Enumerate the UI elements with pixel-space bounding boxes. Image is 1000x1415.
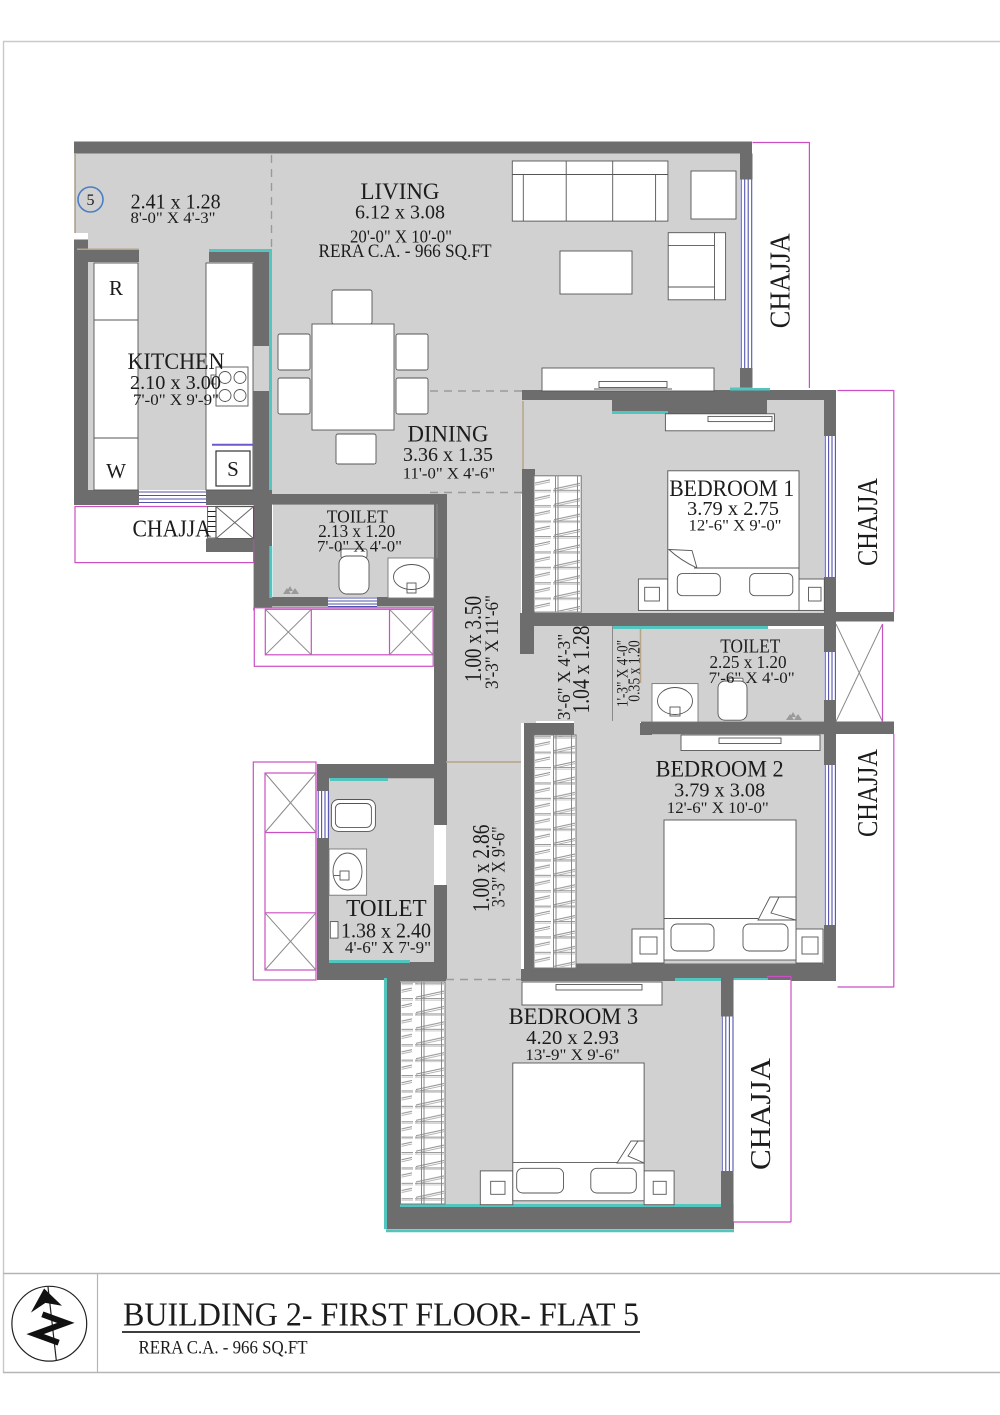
svg-text:2.25 x 1.20: 2.25 x 1.20 — [710, 652, 787, 672]
svg-text:12'-6" X 9'-0": 12'-6" X 9'-0" — [689, 518, 782, 535]
svg-text:13'-9" X 9'-6": 13'-9" X 9'-6" — [525, 1047, 619, 1064]
svg-text:4.20 x 2.93: 4.20 x 2.93 — [526, 1028, 619, 1049]
svg-text:5: 5 — [87, 192, 95, 209]
svg-text:2.10 x 3.00: 2.10 x 3.00 — [130, 372, 221, 394]
svg-text:BEDROOM 2: BEDROOM 2 — [656, 757, 784, 782]
svg-text:R: R — [109, 276, 123, 300]
svg-text:CHAJJA: CHAJJA — [132, 516, 211, 543]
svg-text:S: S — [227, 457, 239, 481]
svg-text:3'-3" X 11'-6": 3'-3" X 11'-6" — [482, 595, 503, 689]
svg-text:CHAJJA: CHAJJA — [853, 748, 884, 837]
svg-text:7'-6" X 4'-0": 7'-6" X 4'-0" — [709, 670, 795, 687]
svg-text:BEDROOM 3: BEDROOM 3 — [509, 1004, 639, 1030]
svg-text:3.79 x 3.08: 3.79 x 3.08 — [674, 780, 765, 802]
svg-text:3'-6" X 4'-3": 3'-6" X 4'-3" — [554, 634, 574, 720]
svg-text:7'-0" X 4'-0": 7'-0" X 4'-0" — [317, 539, 402, 556]
svg-text:1'-3" X 4'-0": 1'-3" X 4'-0" — [614, 640, 631, 707]
svg-text:7'-0" X 9'-9": 7'-0" X 9'-9" — [133, 392, 219, 409]
svg-text:12'-6" X 10'-0": 12'-6" X 10'-0" — [667, 800, 769, 817]
svg-text:CHAJJA: CHAJJA — [853, 477, 884, 566]
svg-text:RERA C.A. - 966 SQ.FT: RERA C.A. - 966 SQ.FT — [319, 242, 492, 262]
svg-text:KITCHEN: KITCHEN — [128, 349, 225, 374]
svg-text:6.12 x 3.08: 6.12 x 3.08 — [355, 202, 445, 224]
svg-text:CHAJJA: CHAJJA — [746, 1057, 777, 1170]
svg-text:CHAJJA: CHAJJA — [766, 232, 797, 328]
svg-text:3.36 x 1.35: 3.36 x 1.35 — [403, 444, 493, 466]
svg-text:W: W — [106, 459, 126, 483]
svg-text:RERA C.A. - 966 SQ.FT: RERA C.A. - 966 SQ.FT — [139, 1338, 308, 1359]
svg-text:BUILDING 2- FIRST FLOOR- FLAT: BUILDING 2- FIRST FLOOR- FLAT 5 — [123, 1297, 639, 1334]
svg-text:11'-0" X 4'-6": 11'-0" X 4'-6" — [403, 466, 496, 483]
svg-text:4'-6" X 7'-9": 4'-6" X 7'-9" — [345, 938, 431, 957]
svg-text:LIVING: LIVING — [361, 179, 440, 204]
svg-text:3'-3" X 9'-6": 3'-3" X 9'-6" — [489, 826, 510, 907]
svg-text:8'-0" X 4'-3": 8'-0" X 4'-3" — [131, 210, 216, 227]
